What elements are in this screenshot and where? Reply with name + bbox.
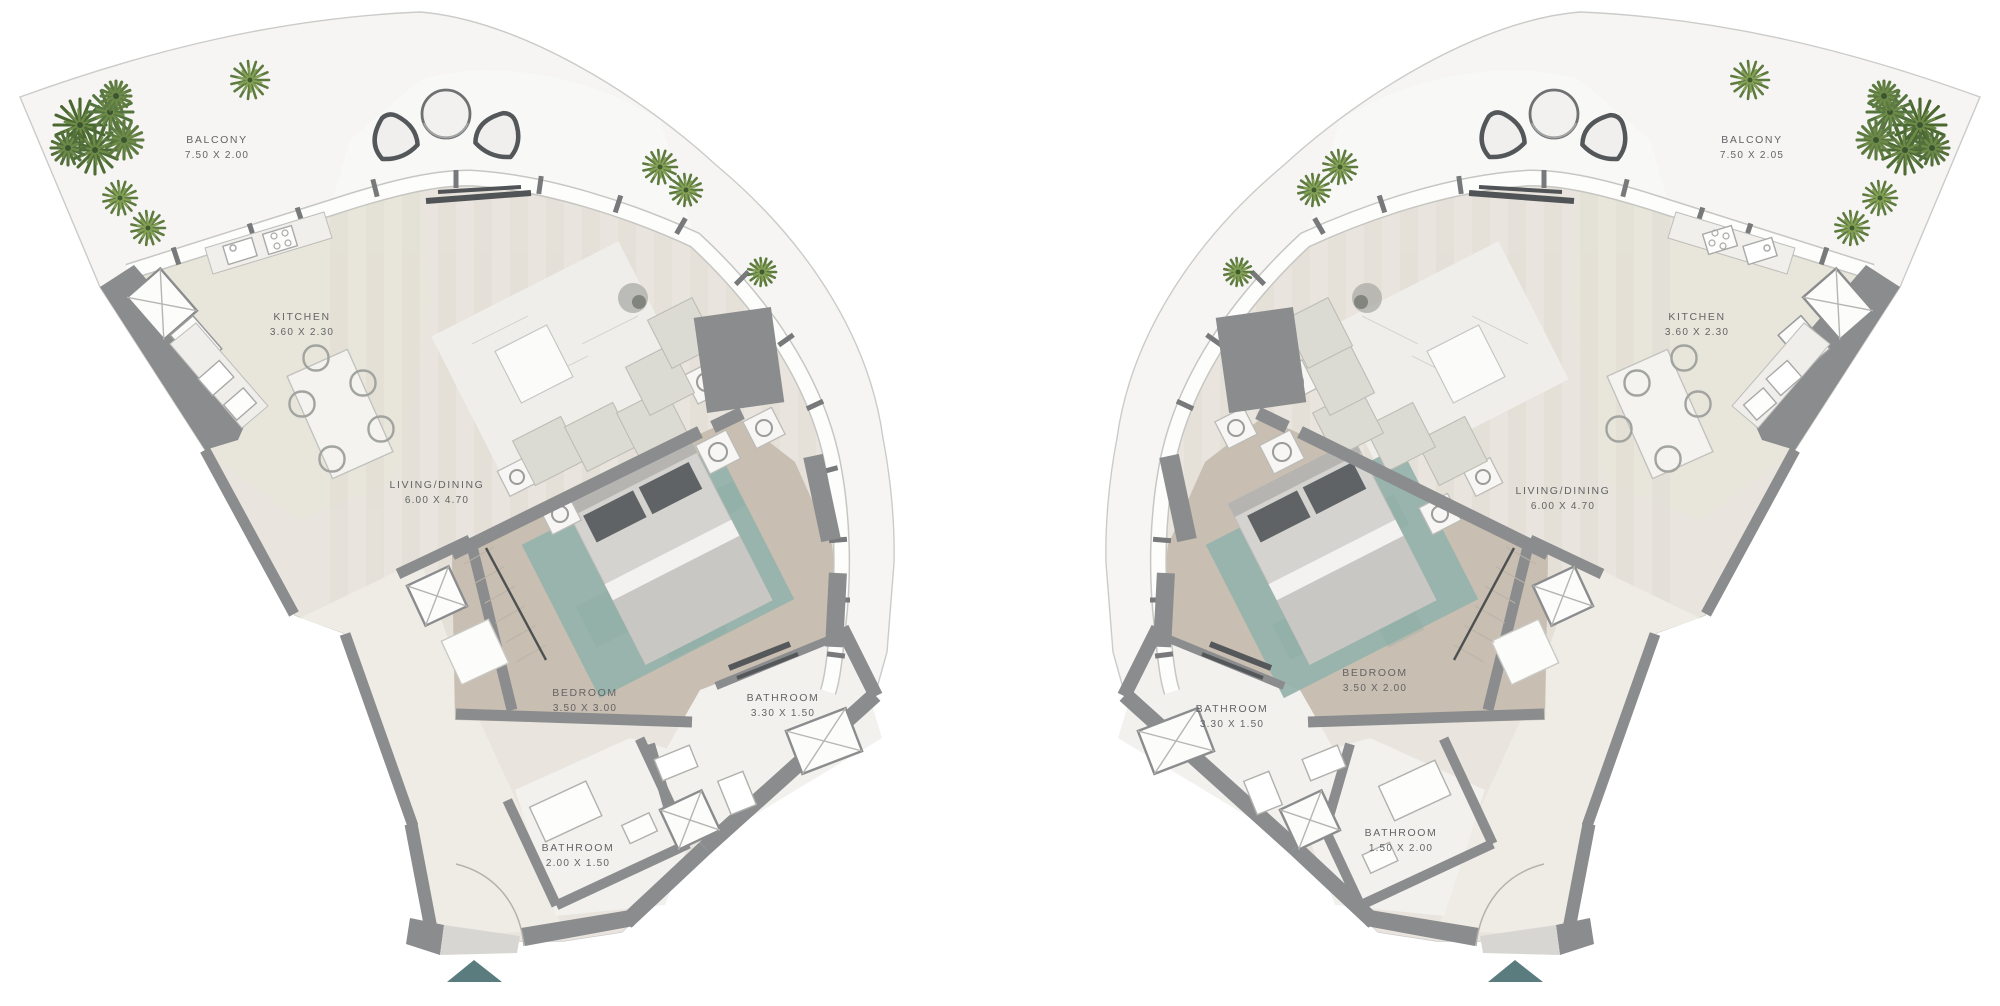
svg-text:LIVING/DINING: LIVING/DINING	[390, 479, 485, 491]
svg-text:BALCONY: BALCONY	[186, 134, 247, 146]
svg-text:3.50 X 3.00: 3.50 X 3.00	[553, 703, 617, 714]
svg-text:BEDROOM: BEDROOM	[1342, 667, 1407, 679]
svg-text:1.50 X 2.00: 1.50 X 2.00	[1369, 843, 1433, 854]
svg-text:6.00 X 4.70: 6.00 X 4.70	[405, 495, 469, 506]
svg-text:KITCHEN: KITCHEN	[1668, 311, 1725, 323]
svg-text:BATHROOM: BATHROOM	[1365, 827, 1438, 839]
svg-text:KITCHEN: KITCHEN	[273, 311, 330, 323]
svg-text:3.50 X 2.00: 3.50 X 2.00	[1343, 683, 1407, 694]
svg-text:7.50 X 2.05: 7.50 X 2.05	[1720, 150, 1784, 161]
svg-text:2.00 X 1.50: 2.00 X 1.50	[546, 858, 610, 869]
svg-text:6.00 X 4.70: 6.00 X 4.70	[1531, 501, 1595, 512]
svg-text:3.60 X 2.30: 3.60 X 2.30	[1665, 327, 1729, 338]
svg-text:BATHROOM: BATHROOM	[542, 842, 615, 854]
svg-text:LIVING/DINING: LIVING/DINING	[1516, 485, 1611, 497]
svg-text:BATHROOM: BATHROOM	[747, 692, 820, 704]
svg-text:BEDROOM: BEDROOM	[552, 687, 617, 699]
svg-text:BATHROOM: BATHROOM	[1196, 703, 1269, 715]
svg-text:3.30 X 1.50: 3.30 X 1.50	[751, 708, 815, 719]
svg-text:3.60 X 2.30: 3.60 X 2.30	[270, 327, 334, 338]
svg-text:7.50 X 2.00: 7.50 X 2.00	[185, 150, 249, 161]
svg-text:3.30 X 1.50: 3.30 X 1.50	[1200, 719, 1264, 730]
svg-text:BALCONY: BALCONY	[1721, 134, 1782, 146]
